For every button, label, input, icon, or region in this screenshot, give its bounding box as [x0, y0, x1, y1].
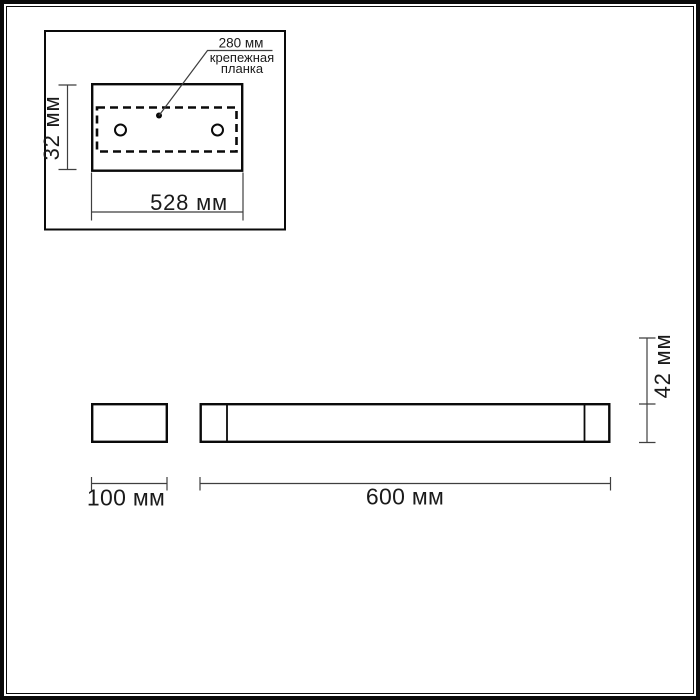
screw-hole-right: [212, 125, 223, 136]
fixture-side-view: [92, 404, 167, 442]
mounting-plate-label-line2: планка: [221, 61, 263, 76]
mounting-plate-label: крепежная планка: [197, 53, 287, 74]
screw-hole-left: [115, 125, 126, 136]
inset-width-label: 528 мм: [150, 192, 228, 214]
main-views: [92, 338, 656, 491]
front-width-label: 600 мм: [366, 486, 444, 509]
inset-height-label: 32 мм: [41, 96, 63, 161]
front-height-label: 42 мм: [652, 334, 674, 399]
drawing-linework: [0, 0, 700, 700]
side-width-label: 100 мм: [87, 487, 165, 510]
fixture-front-view: [201, 404, 610, 442]
dimension-drawing: 280 мм крепежная планка 32 мм 528 мм 100…: [0, 0, 700, 700]
hole-spacing-label: 280 мм: [219, 36, 264, 50]
